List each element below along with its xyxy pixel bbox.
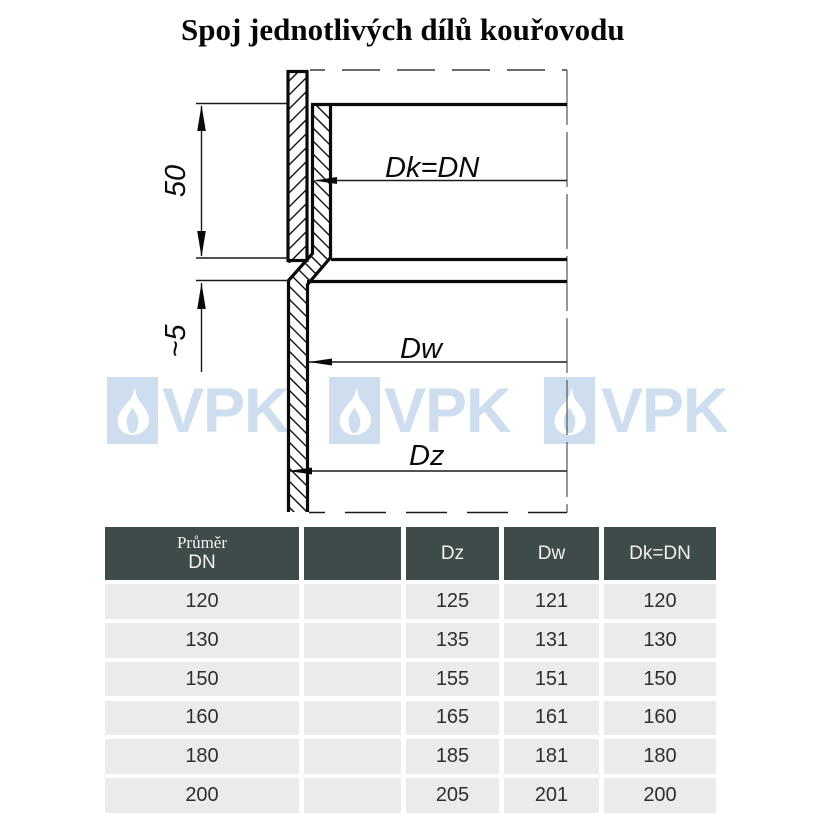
svg-text:Dw: Dw <box>400 333 444 365</box>
svg-text:~5: ~5 <box>160 324 192 358</box>
svg-text:Dz: Dz <box>409 440 445 472</box>
svg-text:Dk=DN: Dk=DN <box>385 152 479 184</box>
svg-text:50: 50 <box>160 165 192 197</box>
